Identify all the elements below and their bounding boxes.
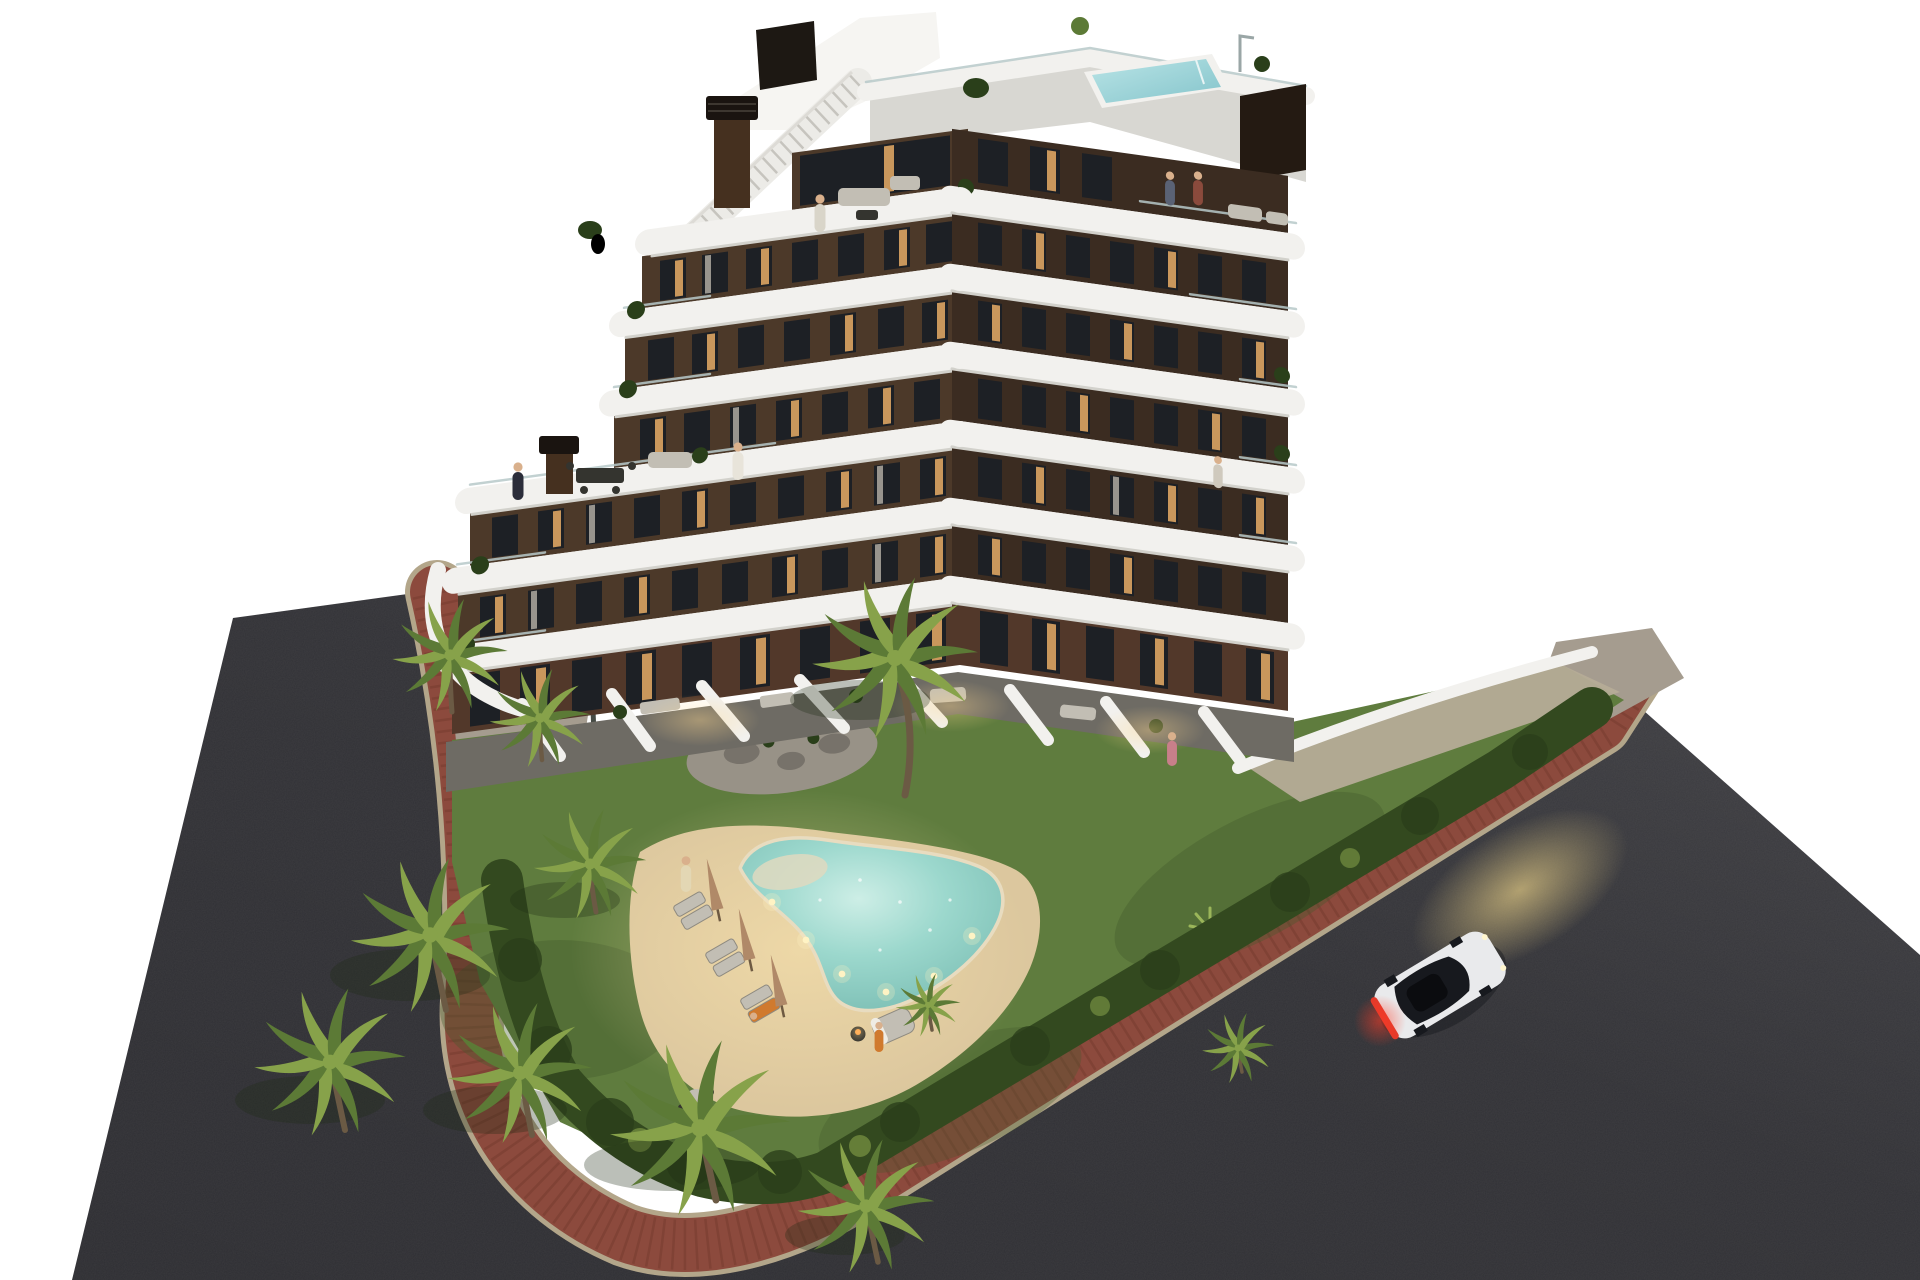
roof-plant: [1071, 17, 1089, 35]
facade-right: [952, 129, 1296, 712]
chimney-cap: [539, 436, 579, 454]
render-canvas: [0, 0, 1920, 1280]
bulkhead-dark-panel: [756, 21, 817, 90]
roof-plant: [1254, 56, 1270, 72]
person-standing-pool: [681, 856, 691, 892]
person-penthouse: [815, 194, 826, 232]
person-terrace: [513, 462, 524, 500]
aerial-render: [0, 0, 1920, 1280]
outdoor-shower: [1240, 36, 1254, 72]
person-right-terrace: [1193, 171, 1203, 206]
roof-tree: [963, 78, 989, 98]
person-terrace: [733, 442, 744, 480]
person-ground-terrace: [1167, 732, 1177, 766]
chimney-lower: [546, 452, 573, 494]
person-seated-firepit: [875, 1022, 884, 1052]
person-balcony: [1213, 456, 1222, 489]
roof-pergola-wall: [1240, 84, 1306, 182]
person-right-terrace: [1165, 171, 1175, 206]
chimney-upper: [714, 118, 750, 208]
chimney-cap: [706, 96, 758, 120]
